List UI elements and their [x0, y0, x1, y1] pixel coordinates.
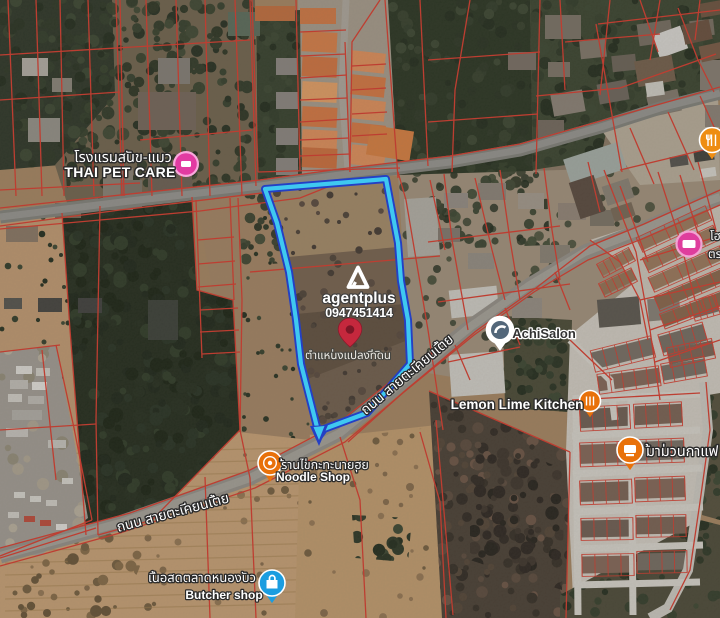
- svg-text:Lemon Lime Kitchen: Lemon Lime Kitchen: [451, 397, 584, 412]
- svg-text:Noodle Shop: Noodle Shop: [276, 470, 350, 484]
- svg-text:Butcher shop: Butcher shop: [185, 588, 262, 602]
- svg-text:AchiSalon: AchiSalon: [512, 326, 576, 341]
- svg-text:THAI PET CARE: THAI PET CARE: [64, 164, 175, 180]
- svg-text:agentplus: agentplus: [322, 290, 395, 307]
- svg-text:0947451414: 0947451414: [325, 306, 393, 320]
